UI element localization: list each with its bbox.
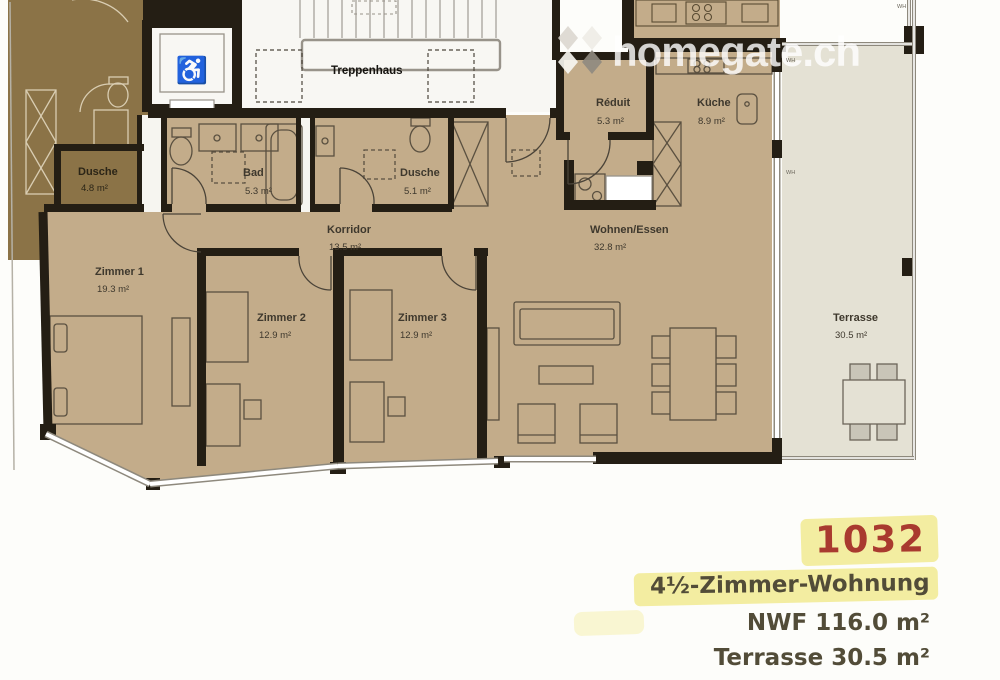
- area-dusche: 5.1 m²: [404, 186, 431, 197]
- floorplan-canvas: ♿: [0, 0, 1000, 680]
- area-dusche-nachbar: 4.8 m²: [81, 183, 108, 194]
- label-korridor: Korridor: [327, 224, 372, 236]
- area-wohnen-essen: 32.8 m²: [594, 242, 626, 253]
- area-terrasse: 30.5 m²: [835, 330, 867, 341]
- label-zimmer1: Zimmer 1: [95, 266, 144, 278]
- area-korridor: 13.5 m²: [329, 242, 361, 253]
- entry-counter: [606, 176, 652, 204]
- label-wohnen-essen: Wohnen/Essen: [590, 224, 669, 236]
- elevator: ♿: [142, 20, 242, 112]
- nwf-value: NWF 116.0 m²: [747, 610, 930, 636]
- apartment-type-row: 4½-Zimmer-Wohnung: [634, 570, 938, 603]
- label-terrasse: Terrasse: [833, 312, 878, 324]
- unit-number-row: 1032: [634, 517, 938, 564]
- shaft-white-1: [142, 115, 162, 212]
- apartment-type: 4½-Zimmer-Wohnung: [650, 572, 930, 598]
- nwf-row: NWF 116.0 m²: [634, 609, 938, 638]
- apartment-type-highlight: 4½-Zimmer-Wohnung: [634, 567, 938, 607]
- highlight-smudge: [574, 610, 645, 636]
- label-dusche: Dusche: [400, 167, 440, 179]
- area-reduit: 5.3 m²: [597, 116, 624, 127]
- dining-table: [670, 328, 716, 420]
- window-mark-3: WH: [897, 4, 906, 10]
- terrace-table: [843, 380, 905, 424]
- label-kueche: Küche: [697, 97, 731, 109]
- label-dusche-nachbar: Dusche: [78, 166, 118, 178]
- window-mark-1: WH: [786, 58, 795, 64]
- terrace-row: Terrasse 30.5 m²: [634, 644, 938, 673]
- area-zimmer2: 12.9 m²: [259, 330, 291, 341]
- watermark-text: homegate.ch: [612, 28, 860, 75]
- window-mark-2: WH: [786, 170, 795, 176]
- area-bad: 5.3 m²: [245, 186, 272, 197]
- area-zimmer1: 19.3 m²: [97, 284, 129, 295]
- label-bad: Bad: [243, 167, 264, 179]
- label-zimmer3: Zimmer 3: [398, 312, 447, 324]
- label-reduit: Réduit: [596, 97, 631, 109]
- wheelchair-icon: ♿: [176, 55, 208, 85]
- unit-number: 1032: [815, 520, 926, 558]
- wall-z1-left: [43, 212, 48, 430]
- unit-number-highlight: 1032: [800, 515, 938, 566]
- label-treppenhaus: Treppenhaus: [331, 65, 403, 77]
- terrace-value: Terrasse 30.5 m²: [714, 645, 930, 671]
- window-band-south: [338, 461, 498, 466]
- area-zimmer3: 12.9 m²: [400, 330, 432, 341]
- area-kueche: 8.9 m²: [698, 116, 725, 127]
- listing-annotation: 1032 4½-Zimmer-Wohnung NWF 116.0 m² Terr…: [634, 517, 938, 679]
- label-zimmer2: Zimmer 2: [257, 312, 306, 324]
- stairwell-floor: [238, 0, 556, 112]
